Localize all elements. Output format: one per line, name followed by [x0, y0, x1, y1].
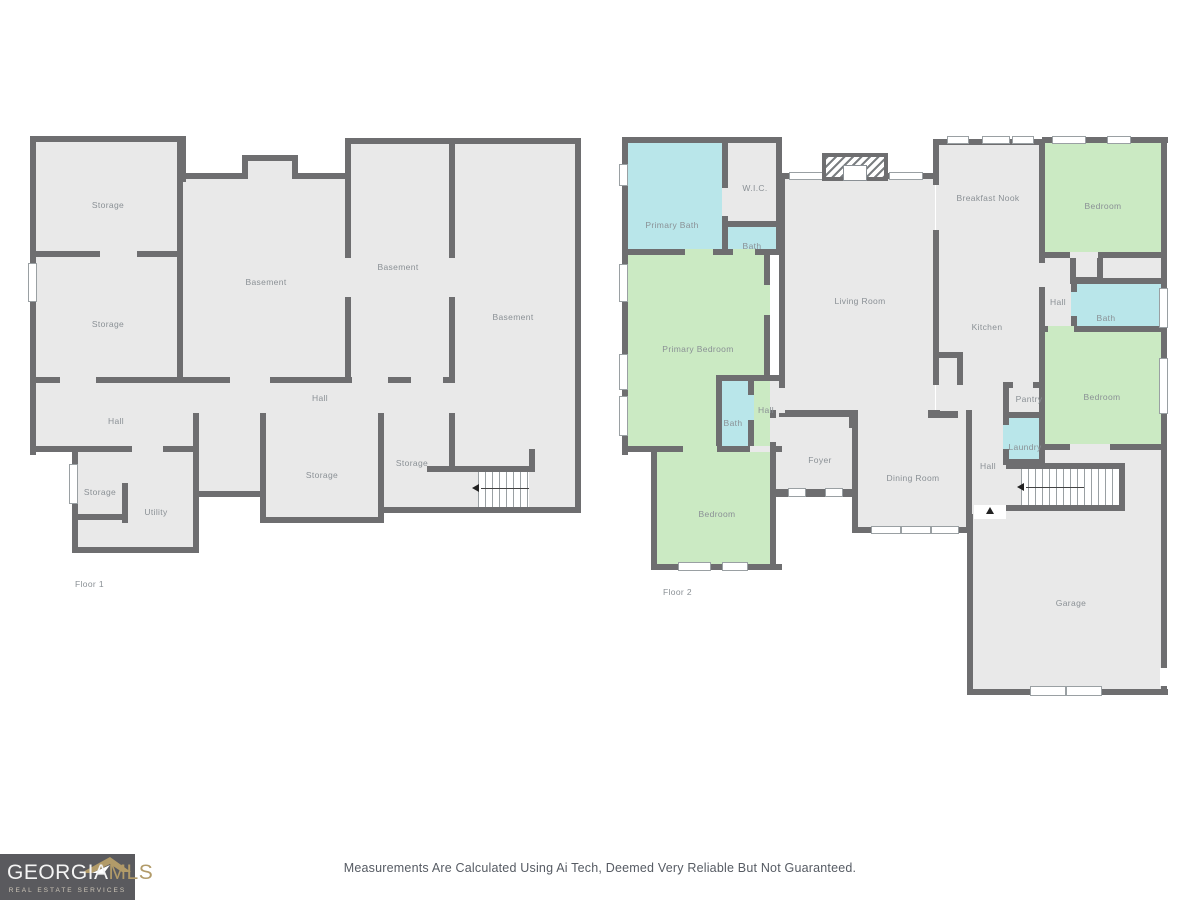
door-opening — [764, 285, 770, 315]
wall-segment — [933, 230, 939, 385]
wall-segment — [852, 413, 858, 533]
door-opening — [779, 388, 785, 413]
door-opening — [1070, 252, 1098, 258]
room-label-wic: W.I.C. — [742, 183, 767, 193]
window-marker — [889, 172, 923, 180]
wall-segment — [716, 375, 722, 452]
wall-segment — [381, 507, 581, 513]
room-label-garage: Garage — [1056, 598, 1086, 608]
room-label-hall-right: Hall — [1050, 297, 1066, 307]
door-opening — [685, 249, 713, 255]
room-label-storage-small-r: Storage — [396, 458, 428, 468]
wall-segment — [529, 449, 535, 472]
wall-segment — [967, 514, 973, 695]
wall-segment — [957, 358, 963, 385]
wall-segment — [764, 255, 770, 381]
room-label-breakfast: Breakfast Nook — [956, 193, 1019, 203]
room-label-bedroom-bl: Bedroom — [699, 509, 736, 519]
window-marker — [1159, 288, 1168, 328]
room-area — [75, 452, 198, 553]
wall-segment — [292, 173, 351, 179]
floorplan-page: StorageStorageBasementBasementBasementHa… — [0, 0, 1200, 900]
wall-segment — [72, 547, 199, 553]
wall-segment — [1119, 469, 1125, 511]
wall-segment — [575, 138, 581, 513]
room-label-hall-pocket: Hall — [758, 405, 774, 415]
wall-segment — [933, 139, 939, 185]
window-marker — [1052, 136, 1086, 144]
door-opening — [722, 188, 728, 216]
room-area — [628, 140, 725, 255]
window-marker — [1159, 358, 1168, 414]
door-opening — [449, 258, 455, 297]
room-label-hall-main: Hall — [312, 393, 328, 403]
wall-segment — [30, 136, 186, 142]
wall-segment — [651, 449, 657, 570]
door-opening — [411, 377, 443, 383]
room-area — [1009, 415, 1042, 465]
window-marker — [678, 562, 711, 571]
window-marker — [722, 562, 748, 571]
room-label-primary-bedroom: Primary Bedroom — [662, 344, 733, 354]
wall-segment — [722, 221, 782, 227]
door-opening — [420, 413, 448, 419]
room-label-dining: Dining Room — [887, 473, 940, 483]
room-label-primary-bath: Primary Bath — [645, 220, 698, 230]
room-label-bath-right: Bath — [1097, 313, 1116, 323]
room-label-kitchen: Kitchen — [972, 322, 1003, 332]
window-marker — [789, 172, 823, 180]
wall-segment — [72, 446, 132, 452]
floor2-caption: Floor 2 — [663, 587, 692, 597]
door-opening — [345, 258, 351, 297]
door-opening — [1039, 263, 1045, 287]
wall-segment — [345, 138, 581, 144]
wall-segment — [242, 155, 298, 161]
room-label-pantry: Pantry — [1016, 394, 1043, 404]
stair-direction-line — [481, 488, 529, 489]
door-opening — [1071, 292, 1077, 316]
wall-segment — [748, 375, 754, 395]
wall-segment — [1161, 137, 1167, 695]
room-area — [1125, 462, 1162, 514]
room-label-utility: Utility — [144, 507, 167, 517]
room-label-bedroom-tr: Bedroom — [1085, 201, 1122, 211]
door-opening — [748, 395, 754, 420]
door-opening — [303, 413, 337, 419]
wall-segment — [163, 446, 199, 452]
window-marker — [947, 136, 969, 144]
room-label-bedroom-mr: Bedroom — [1084, 392, 1121, 402]
wall-segment — [30, 446, 78, 452]
window-marker — [931, 526, 959, 534]
wall-segment — [193, 413, 199, 553]
window-marker — [1012, 136, 1034, 144]
wall-segment — [1039, 287, 1045, 462]
wall-segment — [928, 411, 958, 418]
wall-segment — [1003, 382, 1009, 465]
window-marker — [825, 488, 843, 497]
room-area — [1045, 142, 1162, 258]
door-opening — [1070, 444, 1110, 450]
room-label-storage-ml: Storage — [92, 319, 124, 329]
door-opening — [352, 377, 388, 383]
door-opening — [1048, 326, 1074, 332]
door-opening — [750, 446, 770, 452]
room-area — [936, 142, 1042, 418]
room-label-basement-r: Basement — [492, 312, 533, 322]
room-label-foyer: Foyer — [808, 455, 831, 465]
window-marker — [1066, 686, 1102, 696]
room-label-hall-left: Hall — [108, 416, 124, 426]
room-label-living: Living Room — [834, 296, 885, 306]
room-label-basement-m: Basement — [377, 262, 418, 272]
up-arrow-icon — [986, 507, 994, 514]
wall-segment — [378, 413, 384, 523]
door-opening — [230, 377, 270, 383]
room-label-storage-tl: Storage — [92, 200, 124, 210]
wall-segment — [1006, 505, 1125, 511]
window-marker — [619, 396, 628, 436]
window-marker — [1107, 136, 1131, 144]
window-marker — [982, 136, 1010, 144]
fireplace-firebox — [843, 165, 867, 181]
wall-segment — [177, 139, 183, 380]
room-label-basement-c: Basement — [245, 277, 286, 287]
wall-segment — [72, 514, 128, 520]
door-opening — [1013, 382, 1033, 388]
door-opening — [132, 446, 163, 452]
wall-segment — [651, 564, 782, 570]
window-marker — [619, 264, 628, 302]
wall-segment — [260, 517, 384, 523]
window-marker — [619, 164, 628, 186]
stair-direction-line — [1026, 487, 1084, 488]
door-opening — [60, 377, 96, 383]
wall-segment — [622, 137, 782, 143]
window-marker — [69, 464, 78, 504]
stair-arrow-icon — [1017, 483, 1024, 491]
window-marker — [28, 263, 37, 302]
wall-segment — [260, 413, 266, 523]
door-opening — [683, 446, 717, 452]
wall-segment — [1039, 139, 1045, 263]
wall-segment — [779, 410, 853, 417]
logo-tagline: REAL ESTATE SERVICES — [0, 887, 135, 894]
window-marker — [619, 354, 628, 390]
room-area — [722, 381, 748, 452]
door-opening — [770, 418, 776, 442]
room-label-hall-garage: Hall — [980, 461, 996, 471]
disclaimer-text: Measurements Are Calculated Using Ai Tec… — [0, 861, 1200, 875]
room-label-storage-big: Storage — [306, 470, 338, 480]
room-label-storage-small-l: Storage — [84, 487, 116, 497]
door-opening — [100, 251, 137, 257]
window-marker — [871, 526, 901, 534]
stair-arrow-icon — [472, 484, 479, 492]
wall-segment — [449, 413, 455, 472]
staircase — [478, 472, 529, 507]
room-label-bath-upper: Bath — [743, 241, 762, 251]
wall-segment — [193, 491, 266, 497]
room-area — [1045, 332, 1162, 447]
room-area — [33, 139, 183, 452]
wall-opening — [1160, 668, 1168, 686]
wall-segment — [180, 173, 248, 179]
window-marker — [788, 488, 806, 497]
room-area — [263, 413, 384, 523]
room-area — [1077, 284, 1162, 328]
window-marker — [1030, 686, 1066, 696]
room-label-bath-inner: Bath — [724, 418, 743, 428]
floor1-caption: Floor 1 — [75, 579, 104, 589]
room-label-laundry: Laundry — [1008, 442, 1041, 452]
wall-segment — [779, 173, 785, 413]
wall-segment — [1006, 412, 1045, 418]
wall-segment — [1097, 258, 1103, 283]
window-marker — [901, 526, 931, 534]
